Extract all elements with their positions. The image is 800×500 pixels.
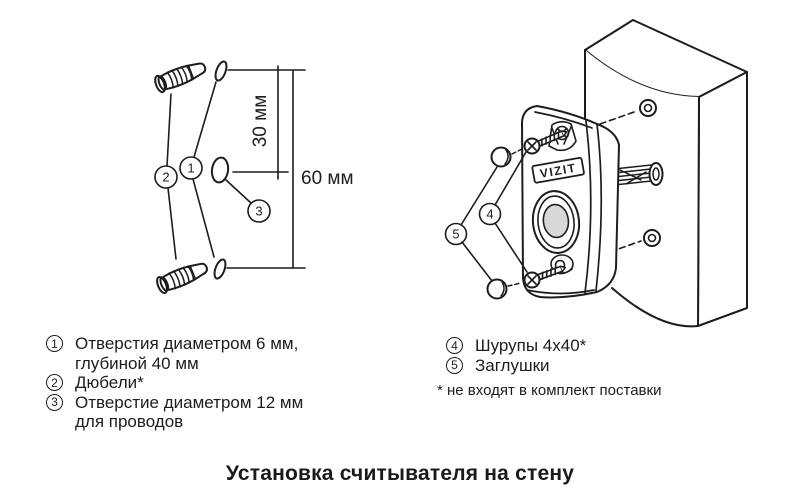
legend-right: 4 Шурупы 4x40* 5 Заглушки (446, 336, 746, 375)
legend-text-5: Заглушки (475, 356, 550, 376)
footnote: * не входят в комплект поставки (437, 382, 661, 399)
legend-text-4: Шурупы 4x40* (475, 336, 586, 356)
drilling-template-diagram: 30 мм 60 мм 1 2 3 (153, 59, 353, 295)
legend-text-1-line-2: глубиной 40 мм (75, 354, 199, 373)
legend-badge-5: 5 (446, 357, 463, 374)
dowel-bottom-drawing (155, 259, 210, 294)
legend-badge-4: 4 (446, 337, 463, 354)
mounting-diagram: VIZIT (446, 20, 748, 326)
cap-top-drawing (492, 148, 511, 167)
callout-2: 2 (155, 166, 177, 188)
legend-text-3: Отверстие диаметром 12 мм для проводов (75, 393, 303, 432)
legend-text-5-line-1: Заглушки (475, 356, 550, 375)
dimension-label-60mm: 60 мм (301, 168, 354, 189)
cap-bottom-drawing (488, 280, 507, 299)
dimension-label-30mm: 30 мм (250, 95, 271, 148)
legend-text-4-line-1: Шурупы 4x40* (475, 336, 586, 355)
svg-text:5: 5 (452, 227, 459, 242)
svg-text:2: 2 (162, 170, 169, 185)
svg-text:3: 3 (255, 204, 262, 219)
legend-text-3-line-2: для проводов (75, 412, 183, 431)
legend-badge-3: 3 (46, 394, 63, 411)
svg-text:1: 1 (187, 161, 194, 176)
legend-badge-1: 1 (46, 335, 63, 352)
legend-text-1: Отверстия диаметром 6 мм, глубиной 40 мм (75, 334, 298, 373)
legend-text-2: Дюбели* (75, 373, 144, 393)
legend-item-screws: 4 Шурупы 4x40* (446, 336, 746, 356)
callout-5: 5 (446, 224, 467, 245)
page-title: Установка считывателя на стену (0, 462, 800, 486)
leader-lines-right (461, 152, 527, 281)
legend-item-hole-12mm: 3 Отверстие диаметром 12 мм для проводов (46, 393, 386, 432)
svg-text:4: 4 (486, 207, 493, 222)
callout-4: 4 (480, 204, 501, 225)
drill-hole-bottom (212, 258, 227, 280)
legend-text-2-line-1: Дюбели* (75, 373, 144, 392)
legend-item-dowels: 2 Дюбели* (46, 373, 386, 393)
legend-item-holes-6mm: 1 Отверстия диаметром 6 мм, глубиной 40 … (46, 334, 386, 373)
dowel-top-drawing (153, 59, 208, 94)
callout-1: 1 (180, 157, 202, 179)
callout-3: 3 (248, 200, 270, 222)
instruction-sheet: 30 мм 60 мм 1 2 3 (0, 0, 800, 500)
legend-left: 1 Отверстия диаметром 6 мм, глубиной 40 … (46, 334, 386, 432)
legend-text-3-line-1: Отверстие диаметром 12 мм (75, 393, 303, 412)
wire-hole (210, 157, 229, 184)
legend-item-caps: 5 Заглушки (446, 356, 746, 376)
legend-text-1-line-1: Отверстия диаметром 6 мм, (75, 334, 298, 353)
legend-badge-2: 2 (46, 374, 63, 391)
drill-hole-top (213, 60, 228, 82)
